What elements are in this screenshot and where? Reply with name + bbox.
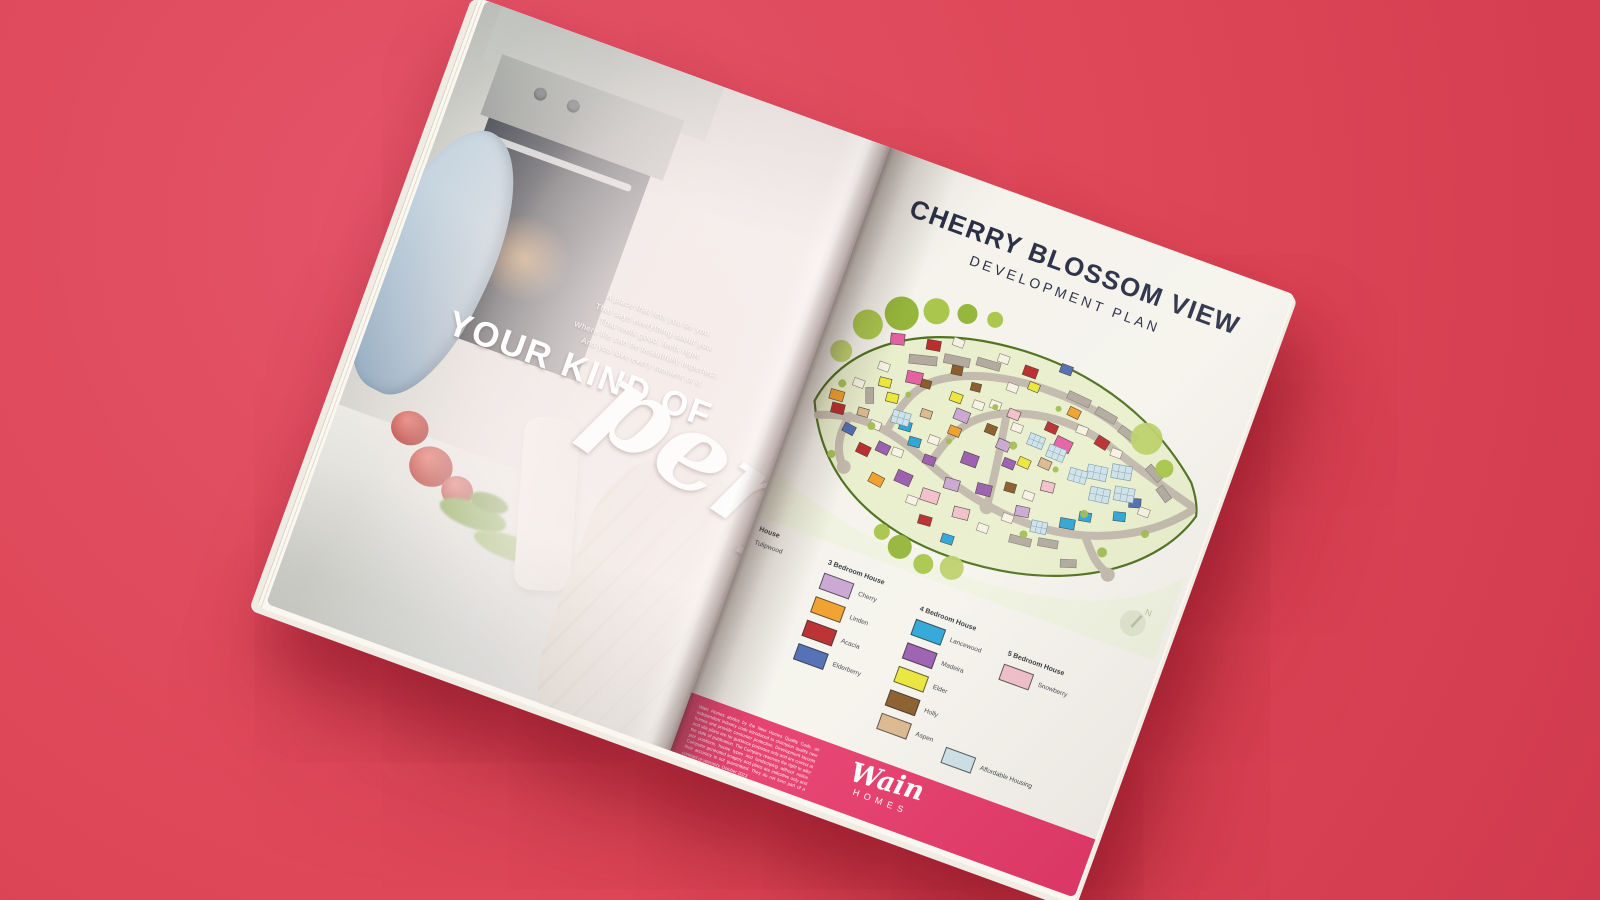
legend-label: Cherry: [857, 591, 878, 604]
legend-swatch: [885, 689, 921, 716]
legend-label: Acacia: [840, 638, 861, 651]
legend-column: 5 Bedroom HouseSnowberry: [996, 650, 1075, 711]
tree: [880, 292, 924, 336]
legend-label: Tulipwood: [753, 539, 783, 556]
tree: [849, 305, 887, 343]
legend-swatch: [819, 573, 855, 600]
legend-column: 3 Bedroom HouseCherryLindenAcaciaElderbe…: [790, 559, 894, 690]
legend-swatch: [793, 643, 829, 670]
house-plot-cyan: [1113, 512, 1126, 522]
legend-label: Snowberry: [1037, 682, 1069, 699]
legend-swatch: [910, 619, 946, 646]
scene-background: A place that lets you be you.That says e…: [0, 0, 1600, 900]
house-plot-grey: [866, 387, 874, 403]
tree: [955, 301, 981, 327]
legend-swatch: [902, 642, 938, 669]
house-plot-brown: [951, 365, 964, 376]
legend-column: 4 Bedroom HouseLancewoodMadeiraElderHoll…: [873, 606, 988, 761]
legend-swatch: [801, 620, 837, 647]
legend-label: Lancewood: [949, 637, 983, 655]
brochure-spread: A place that lets you be you.That says e…: [266, 0, 1294, 897]
tree: [920, 295, 953, 328]
house-plot-red: [926, 339, 942, 351]
legend-swatch: [998, 664, 1034, 691]
house-plot-afford: [1113, 486, 1135, 503]
legend-swatch: [810, 596, 846, 623]
house-plot-afford: [1111, 464, 1133, 481]
tree: [985, 310, 1006, 331]
legend-label: Affordable Housing: [979, 765, 1033, 790]
legend-label: Madeira: [940, 660, 964, 675]
legend-label: Elderberry: [831, 661, 862, 678]
legend-label: Elder: [932, 684, 949, 696]
legend-label: Linden: [848, 614, 869, 627]
legend-column: HouseTulipwood: [751, 526, 789, 563]
house-plot-cyan: [1059, 518, 1076, 530]
legend-label: Holly: [923, 707, 939, 719]
legend-item: Tulipwood: [753, 539, 783, 556]
house-plot-magenta: [890, 333, 905, 345]
house-plot-grey: [1060, 559, 1076, 568]
legend-swatch: [893, 666, 929, 693]
legend-swatch: [876, 713, 912, 740]
legend-swatch: [940, 747, 976, 774]
legend-label: Aspen: [914, 731, 934, 744]
legend-header: House: [758, 526, 788, 543]
